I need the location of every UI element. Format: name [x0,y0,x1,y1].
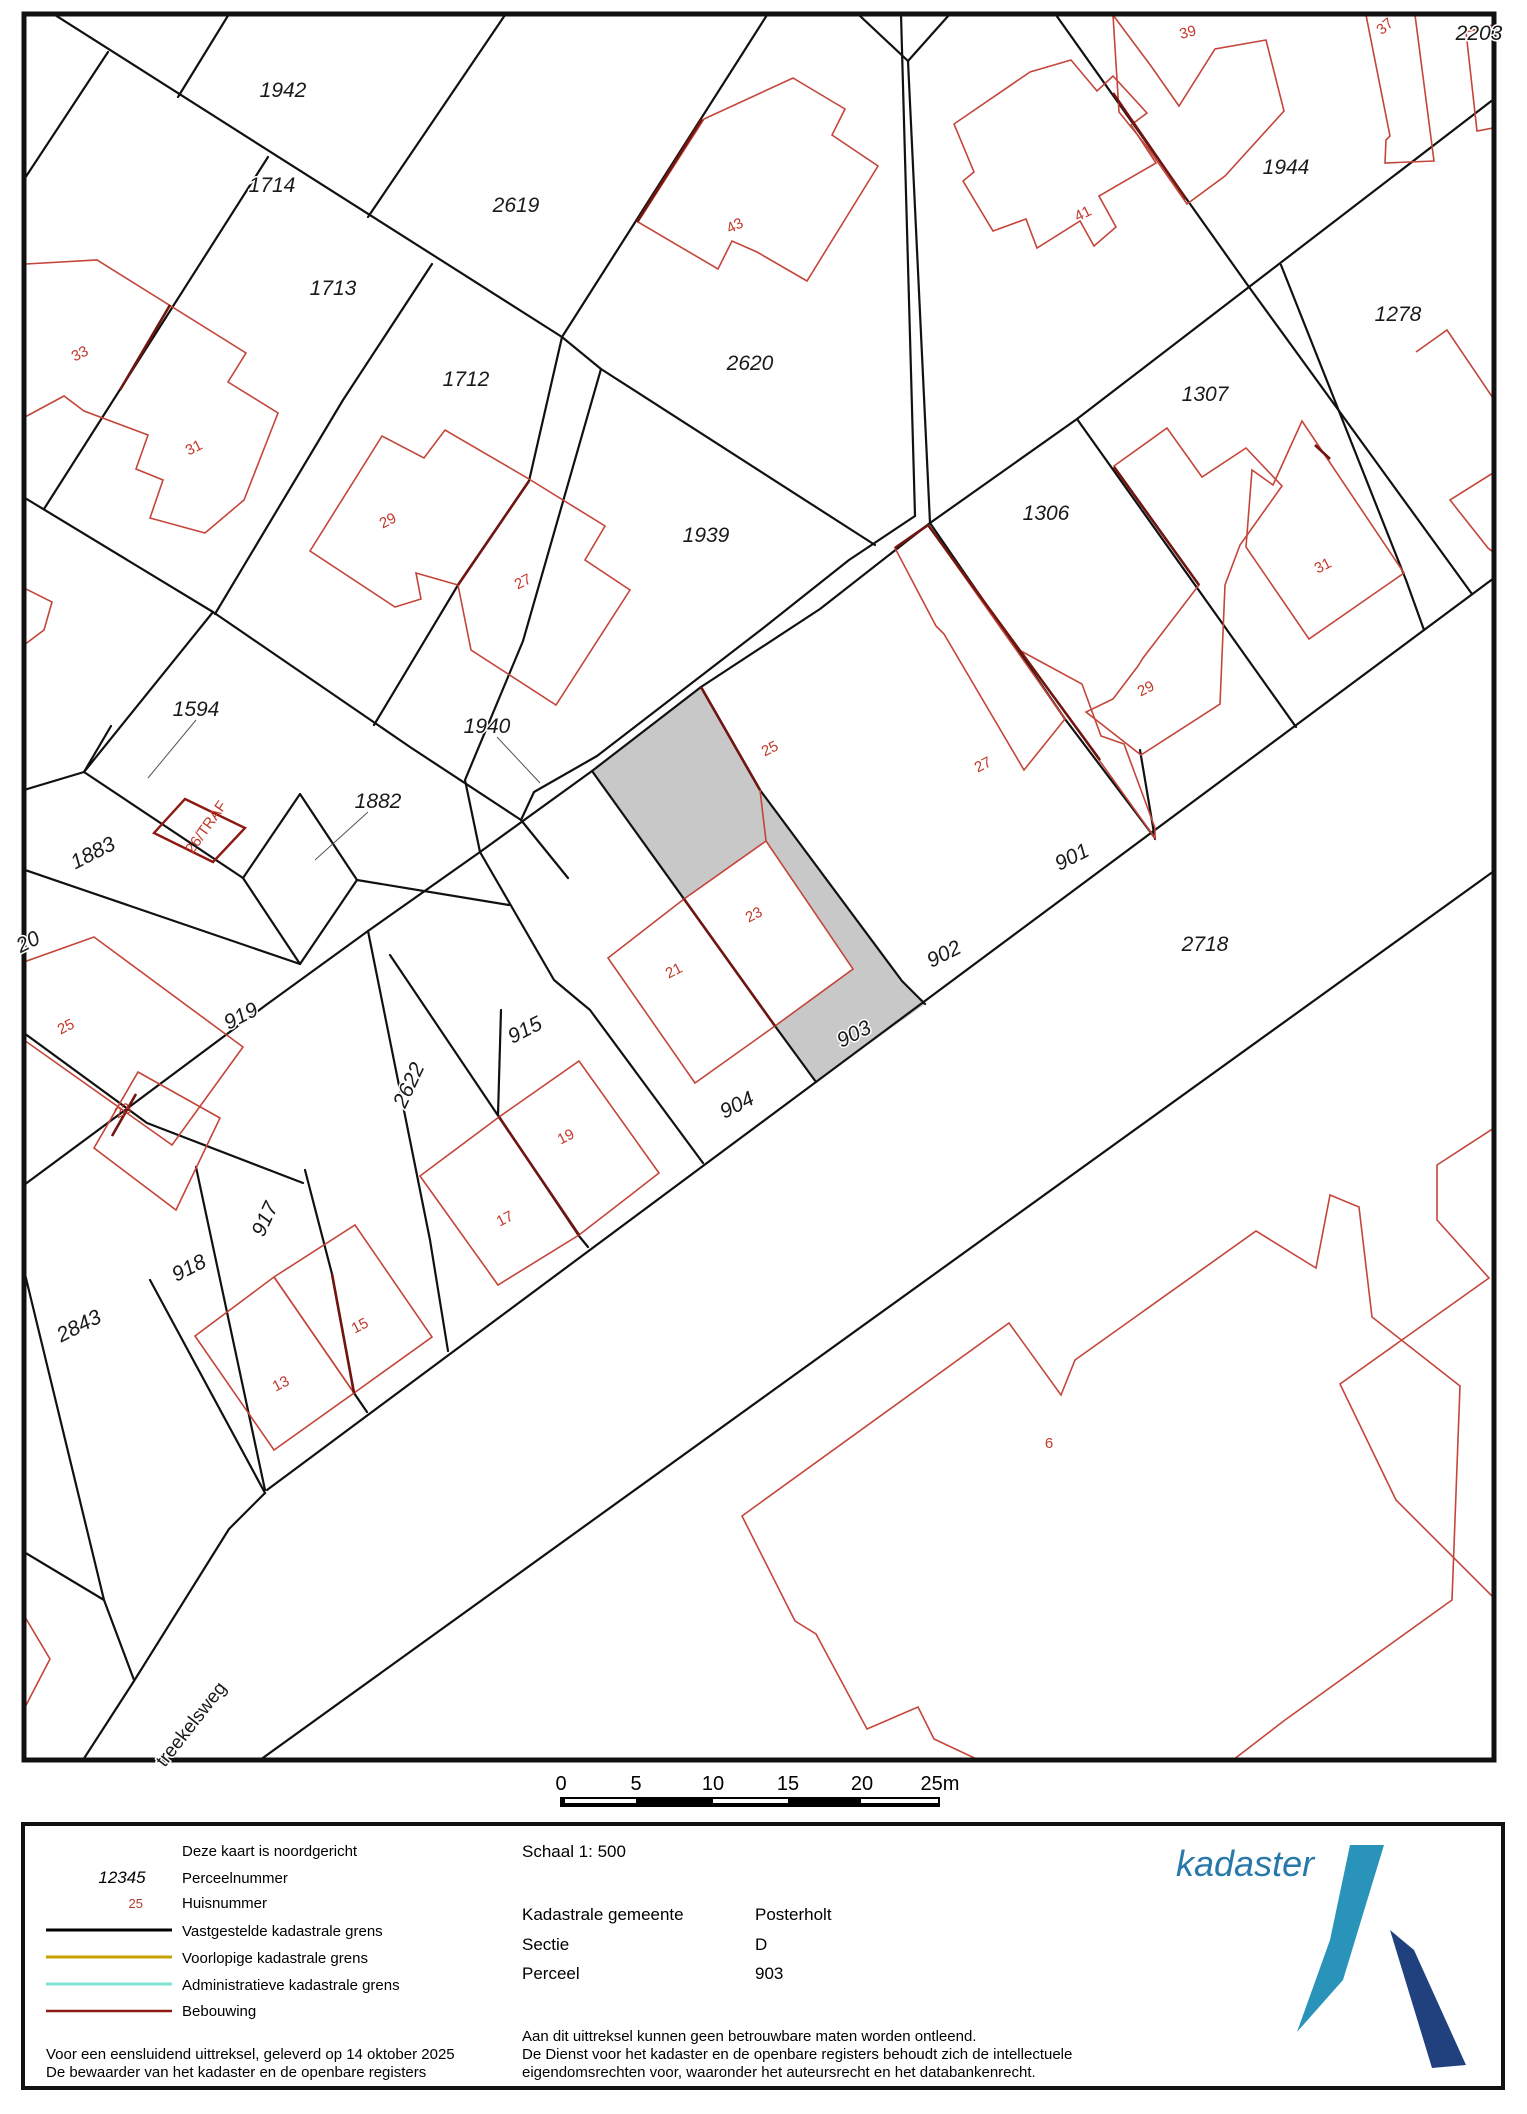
svg-text:Perceelnummer: Perceelnummer [182,1870,288,1887]
svg-text:Schaal 1: 500: Schaal 1: 500 [522,1842,626,1861]
svg-text:1306: 1306 [1023,502,1070,525]
svg-text:25: 25 [129,1896,143,1911]
svg-text:25m: 25m [921,1773,960,1795]
svg-text:1882: 1882 [355,790,402,813]
svg-text:Perceel: Perceel [522,1964,580,1983]
svg-text:Vastgestelde kadastrale grens: Vastgestelde kadastrale grens [182,1923,383,1940]
svg-text:5: 5 [630,1773,641,1795]
svg-text:1594: 1594 [173,698,220,721]
svg-text:1714: 1714 [249,174,296,197]
svg-text:12345: 12345 [98,1868,146,1887]
svg-text:Voor een eensluidend uittrekse: Voor een eensluidend uittreksel, gelever… [46,2046,455,2063]
svg-text:1713: 1713 [310,277,357,300]
svg-text:Voorlopige kadastrale grens: Voorlopige kadastrale grens [182,1950,368,1967]
svg-text:Aan dit uittreksel kunnen geen: Aan dit uittreksel kunnen geen betrouwba… [522,2028,976,2045]
svg-text:1939: 1939 [683,524,730,547]
svg-text:1942: 1942 [260,79,307,102]
svg-text:Huisnummer: Huisnummer [182,1895,267,1912]
svg-text:kadaster: kadaster [1176,1843,1316,1884]
svg-text:D: D [755,1935,767,1954]
svg-text:Sectie: Sectie [522,1935,569,1954]
svg-text:10: 10 [702,1773,724,1795]
svg-text:2620: 2620 [726,352,774,375]
svg-text:Administratieve kadastrale gre: Administratieve kadastrale grens [182,1977,400,1994]
svg-text:20: 20 [851,1773,873,1795]
svg-text:Posterholt: Posterholt [755,1905,832,1924]
svg-text:2718: 2718 [1181,933,1229,956]
svg-text:Kadastrale gemeente: Kadastrale gemeente [522,1905,684,1924]
svg-text:Bebouwing: Bebouwing [182,2003,256,2020]
svg-text:1307: 1307 [1182,383,1230,406]
svg-text:1278: 1278 [1375,303,1422,326]
svg-text:1940: 1940 [464,715,511,738]
svg-text:Deze kaart is noordgericht: Deze kaart is noordgericht [182,1843,358,1860]
svg-text:0: 0 [555,1773,566,1795]
svg-text:1712: 1712 [443,368,490,391]
svg-text:2203: 2203 [1455,22,1503,45]
svg-text:6: 6 [1045,1435,1053,1452]
svg-text:De bewaarder van het kadaster: De bewaarder van het kadaster en de open… [46,2064,426,2081]
svg-text:1944: 1944 [1263,156,1310,179]
svg-text:903: 903 [755,1964,783,1983]
svg-text:2619: 2619 [492,194,540,217]
svg-text:De Dienst voor het kadaster en: De Dienst voor het kadaster en de openba… [522,2046,1072,2063]
svg-text:eigendomsrechten voor, waarond: eigendomsrechten voor, waaronder het aut… [522,2064,1036,2081]
svg-text:15: 15 [777,1773,799,1795]
